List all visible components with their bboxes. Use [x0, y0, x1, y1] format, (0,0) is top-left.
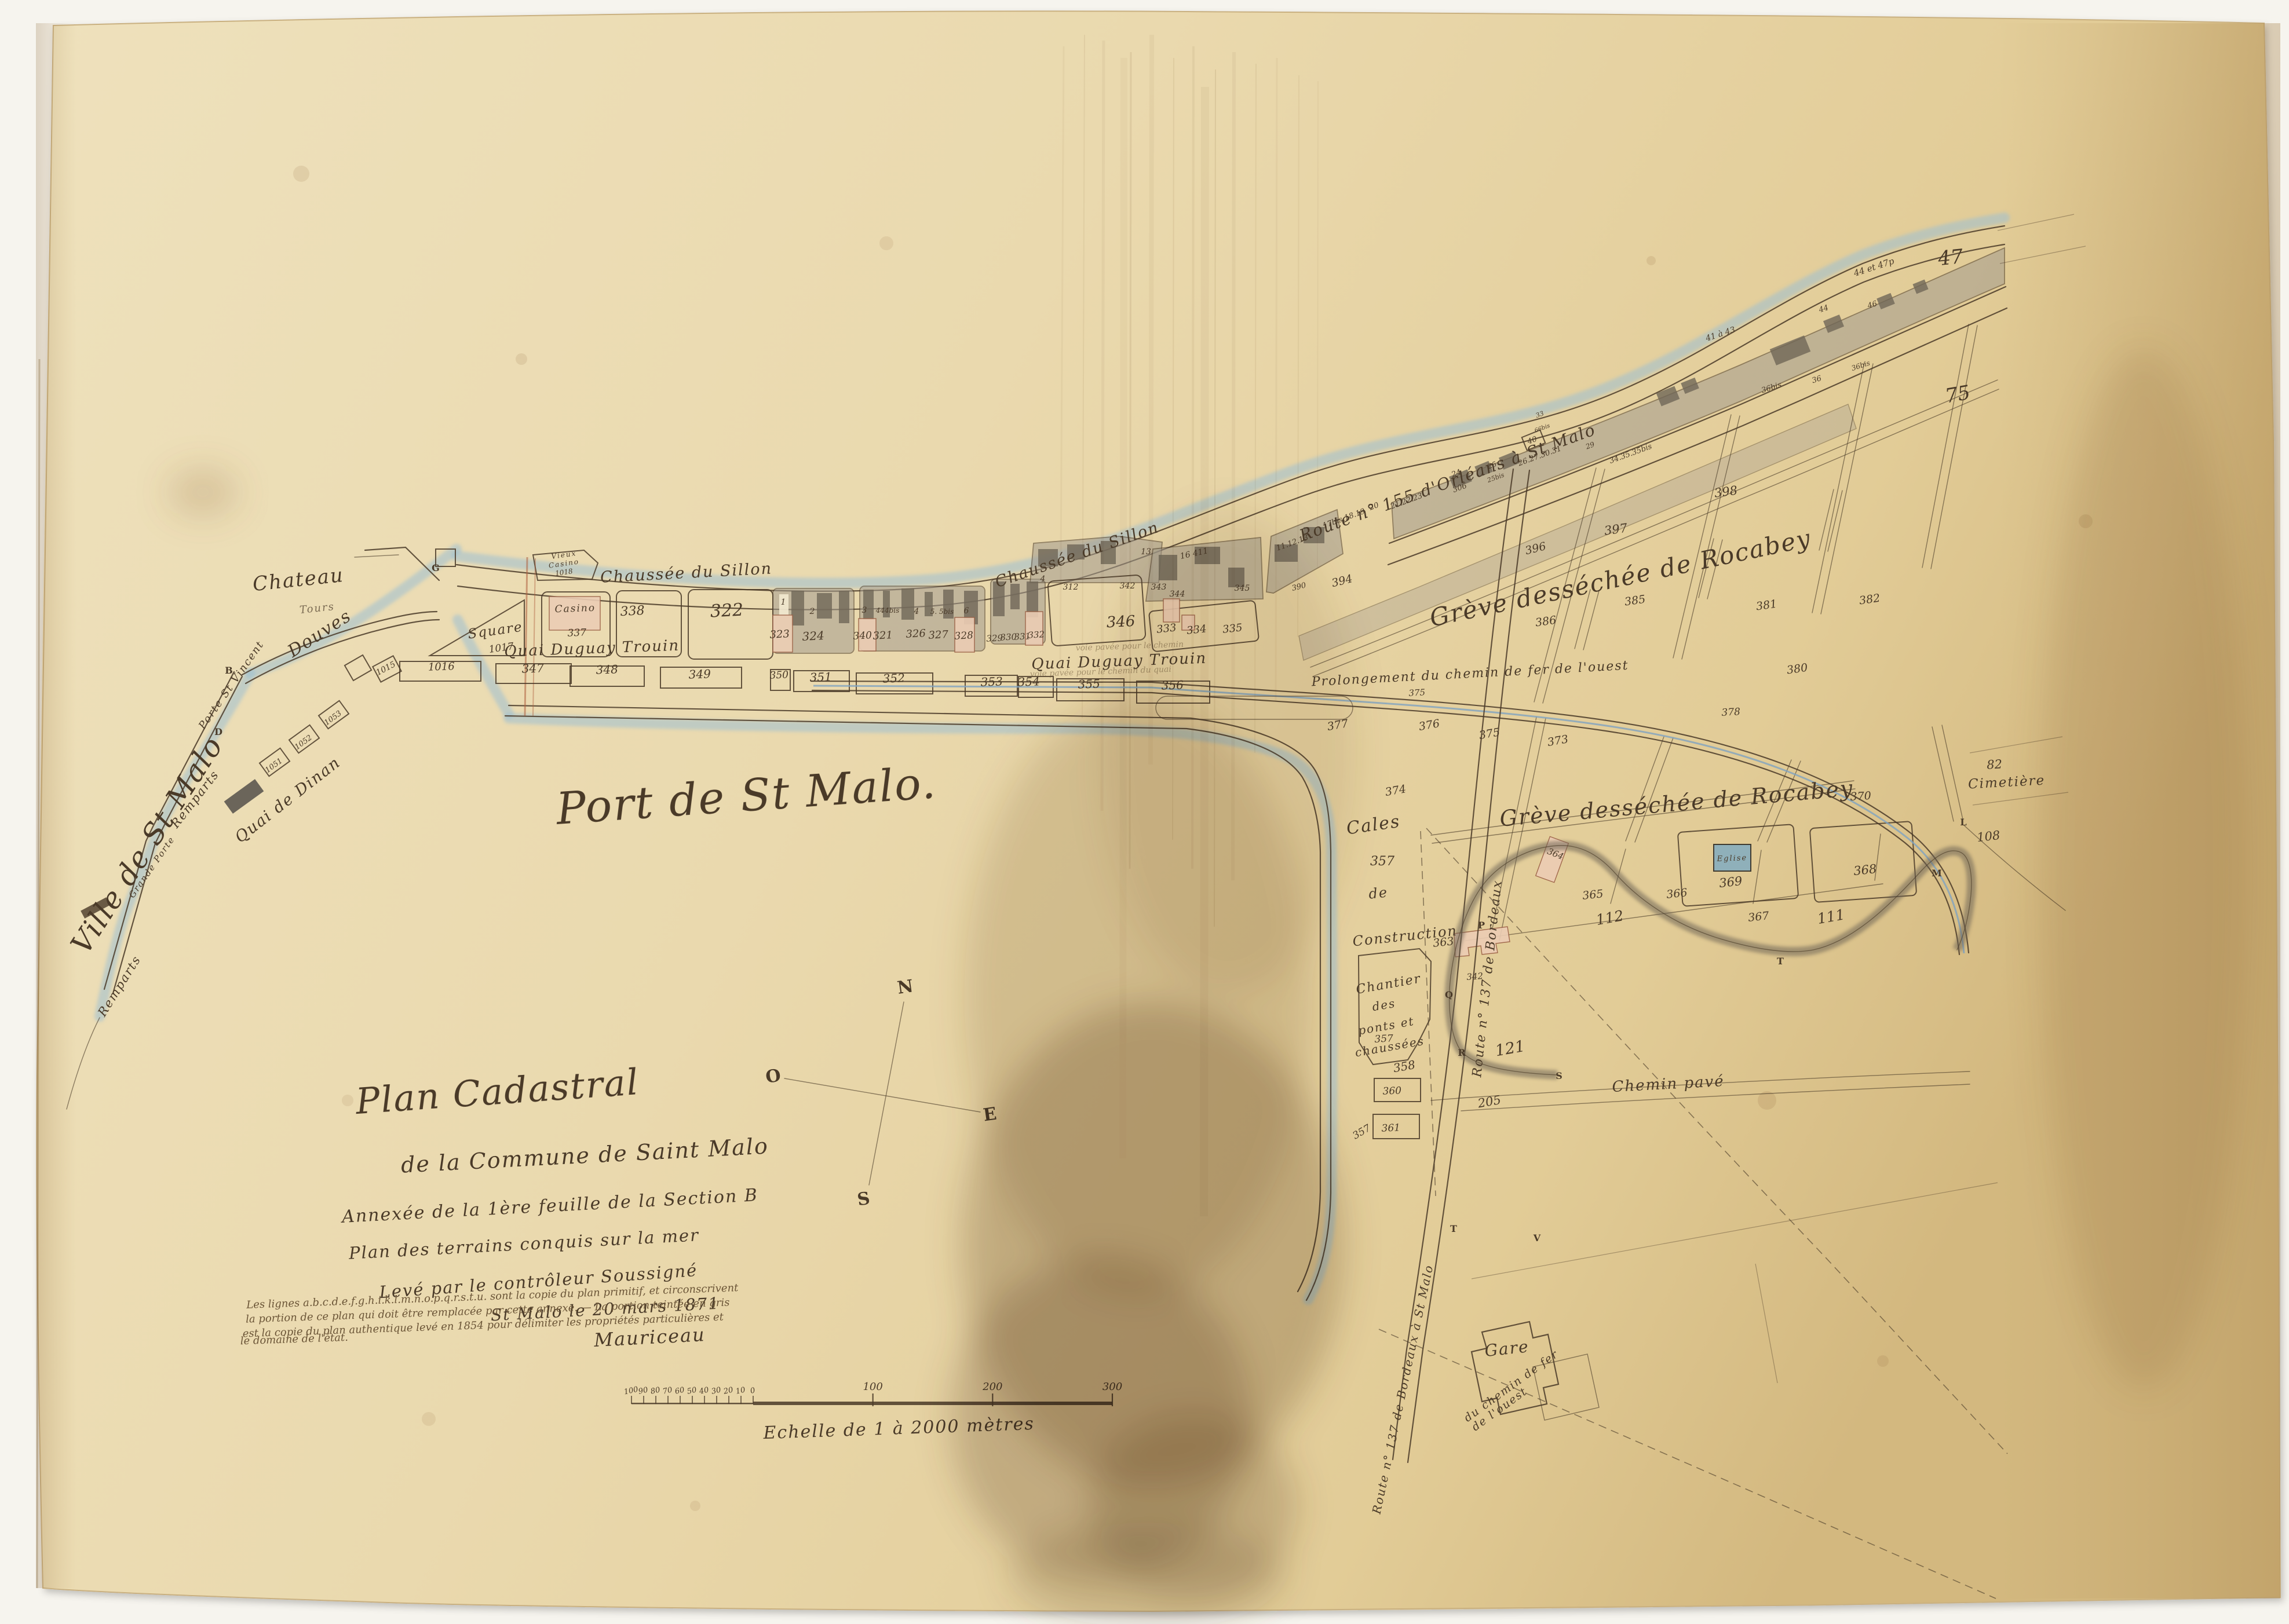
label-g342b: 342 — [1466, 971, 1484, 982]
label-p347: 347 — [521, 661, 544, 675]
label-b1: 1 — [781, 598, 786, 607]
label-p353: 353 — [980, 674, 1003, 689]
label-g357b: 357 — [1374, 1033, 1394, 1045]
label-mR: R — [1458, 1047, 1466, 1058]
label-mM: M — [1932, 868, 1942, 879]
label-p340: 340 — [853, 630, 872, 642]
label-p326: 326 — [906, 627, 926, 641]
label-p327: 327 — [928, 628, 949, 642]
label-cO: O — [764, 1065, 782, 1087]
label-b312: 312 — [1063, 583, 1079, 592]
label-b444: 444bis — [875, 606, 900, 615]
label-p350: 350 — [769, 669, 788, 681]
label-mG: G — [432, 562, 440, 573]
label-mT: T — [1777, 956, 1784, 967]
label-p349: 349 — [688, 667, 711, 681]
label-r75: 75 — [1943, 381, 1972, 408]
label-p324: 324 — [802, 628, 824, 643]
label-casino2: 337 — [567, 627, 586, 639]
label-mS: S — [1556, 1070, 1562, 1081]
label-g370: 370 — [1850, 789, 1871, 803]
label-p323: 323 — [769, 628, 790, 641]
scale-tick-label: 100 — [863, 1381, 882, 1393]
label-g378: 378 — [1721, 706, 1741, 719]
cadastral-map-scan: 1009080706050403020100100200300 Plan Cad… — [0, 0, 2289, 1624]
label-g367: 367 — [1747, 909, 1770, 924]
label-mL: L — [1960, 817, 1966, 828]
label-mT2: T — [1450, 1223, 1457, 1234]
label-cales2: 357 — [1370, 854, 1394, 869]
label-p355: 355 — [1078, 676, 1100, 691]
label-casino1: Casino — [554, 602, 596, 615]
label-b2: 2 — [809, 607, 815, 616]
label-r47: 47 — [1936, 245, 1965, 270]
label-p348: 348 — [596, 662, 618, 676]
label-p338: 338 — [620, 603, 645, 619]
label-g368: 368 — [1853, 862, 1877, 878]
label-g360: 360 — [1382, 1085, 1401, 1097]
label-b3: 3 — [862, 606, 867, 615]
paper-left-aging — [36, 23, 76, 1588]
label-eglise: Eglise — [1716, 854, 1747, 864]
label-g375a: 375 — [1408, 687, 1426, 698]
label-b4: 4 — [914, 607, 919, 616]
label-cN: N — [896, 976, 915, 998]
label-p352: 352 — [882, 671, 905, 685]
label-g369: 369 — [1718, 874, 1743, 890]
label-p322: 322 — [710, 600, 744, 622]
label-cales3: de — [1368, 884, 1389, 902]
label-p321: 321 — [872, 629, 893, 642]
label-mP: P — [1478, 920, 1485, 931]
label-mB: B — [225, 665, 233, 676]
label-b6: 6 — [964, 606, 969, 616]
label-g365: 365 — [1582, 887, 1604, 902]
label-mV: V — [1533, 1232, 1541, 1243]
label-b5: 5. 5bis — [930, 608, 954, 616]
label-g363: 363 — [1432, 935, 1454, 950]
label-p332: 332 — [1028, 629, 1045, 640]
label-g366: 366 — [1666, 886, 1688, 901]
label-p351: 351 — [809, 670, 832, 684]
label-g361: 361 — [1381, 1122, 1400, 1134]
label-mQ: Q — [1445, 989, 1453, 1000]
label-r108: 108 — [1976, 828, 2000, 844]
label-p328: 328 — [954, 630, 974, 642]
label-p354: 354 — [1017, 674, 1040, 689]
label-mD: D — [214, 726, 222, 737]
label-b4b: 4 — [1040, 575, 1046, 584]
label-p1016: 1016 — [428, 660, 455, 674]
label-r82: 82 — [1987, 757, 2003, 771]
